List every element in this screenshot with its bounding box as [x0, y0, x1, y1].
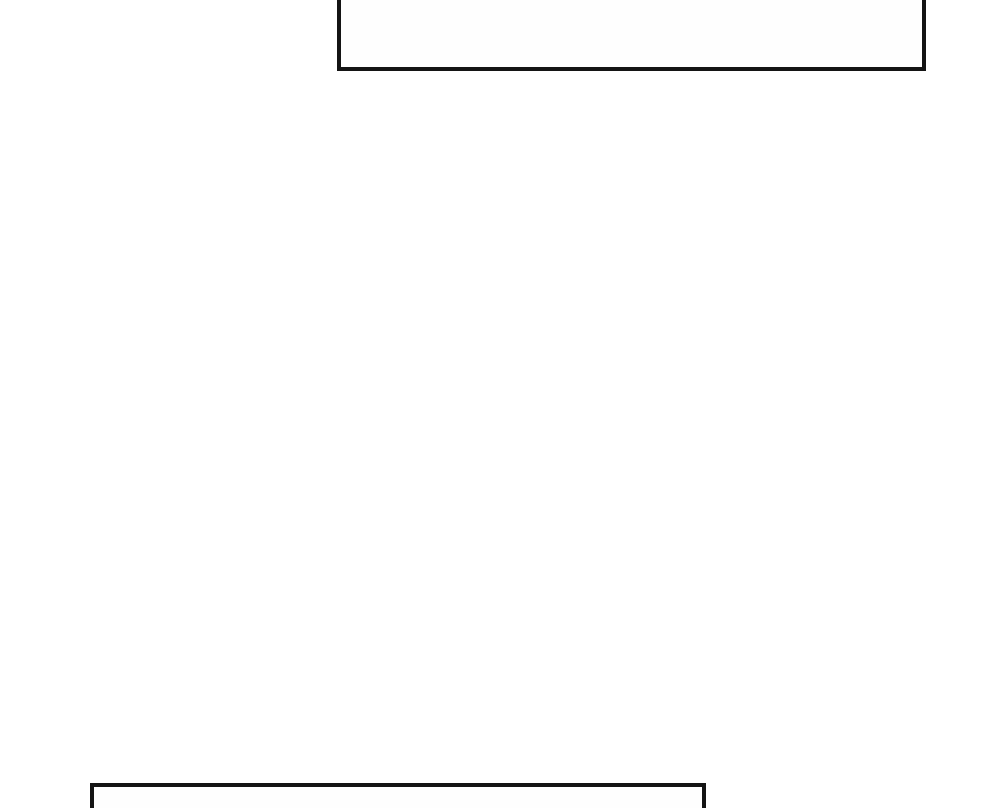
- comic-panel-top: [337, 0, 926, 71]
- comic-panel-bottom: [90, 783, 706, 808]
- comic-page: [0, 0, 1000, 808]
